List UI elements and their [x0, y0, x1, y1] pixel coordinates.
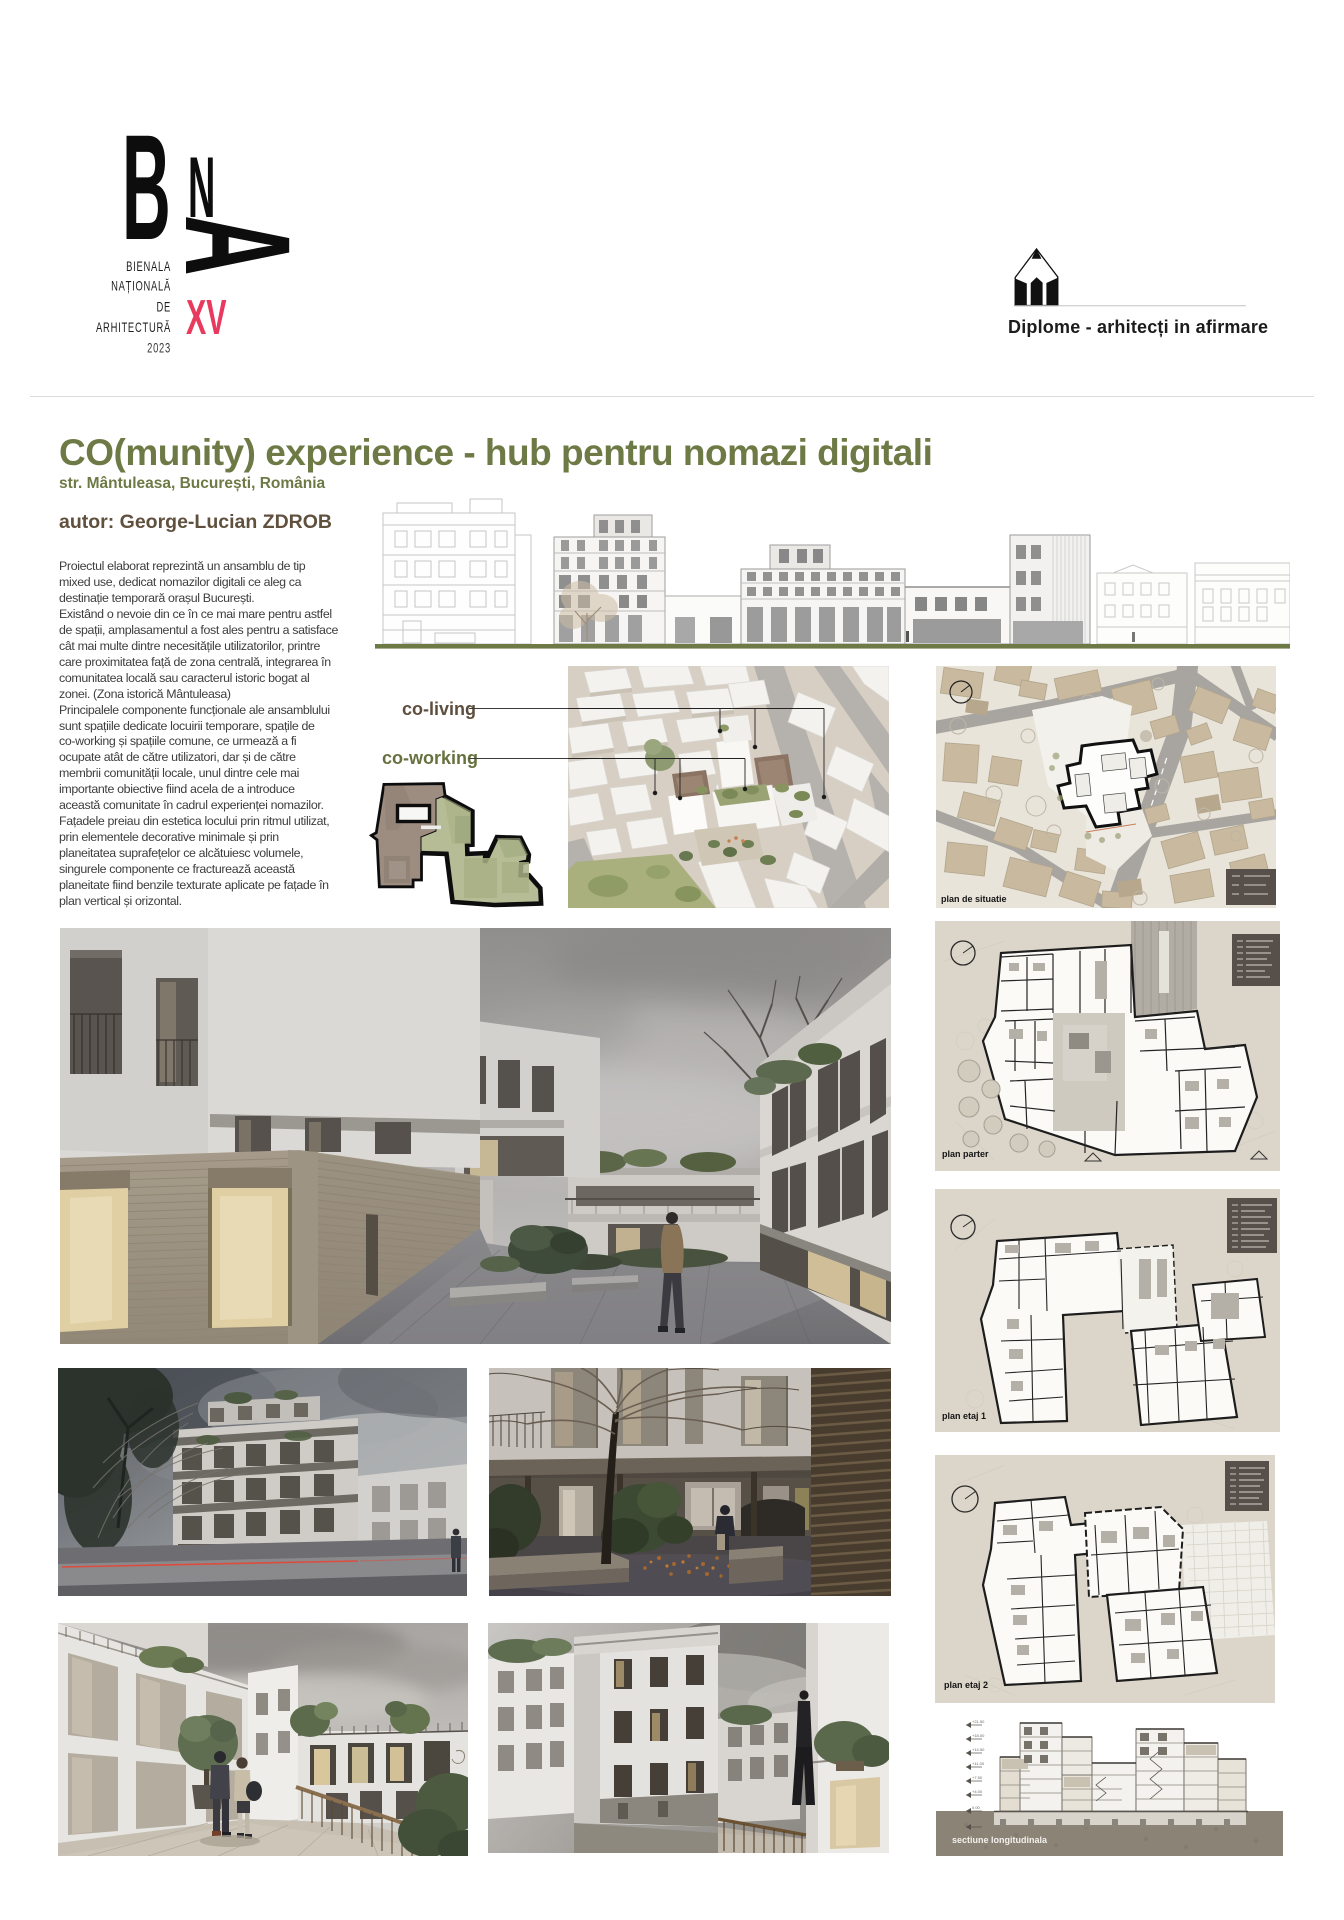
- svg-text:+14.50: +14.50: [972, 1747, 985, 1752]
- svg-text:ARHITECTURĂ: ARHITECTURĂ: [96, 319, 171, 335]
- svg-text:BIENALA: BIENALA: [126, 258, 171, 274]
- svg-text:plan etaj 1: plan etaj 1: [942, 1411, 986, 1421]
- svg-text:plan de situatie: plan de situatie: [941, 894, 1007, 904]
- svg-text:sectiune longitudinala: sectiune longitudinala: [952, 1835, 1048, 1845]
- svg-text:A: A: [154, 215, 322, 276]
- svg-text:+4.00: +4.00: [972, 1789, 983, 1794]
- svg-text:+11.00: +11.00: [972, 1761, 985, 1766]
- svg-text:+18.00: +18.00: [972, 1733, 985, 1738]
- svg-text:XV: XV: [186, 290, 227, 345]
- svg-text:plan parter: plan parter: [942, 1149, 989, 1159]
- svg-text:+7.50: +7.50: [972, 1775, 983, 1780]
- svg-text:DE: DE: [156, 299, 171, 315]
- svg-text:plan etaj 2: plan etaj 2: [944, 1680, 988, 1690]
- svg-text:0.00: 0.00: [972, 1805, 981, 1810]
- svg-text:2023: 2023: [147, 340, 171, 356]
- svg-text:NAȚIONALĂ: NAȚIONALĂ: [111, 278, 171, 294]
- svg-text:+21.50: +21.50: [972, 1719, 985, 1724]
